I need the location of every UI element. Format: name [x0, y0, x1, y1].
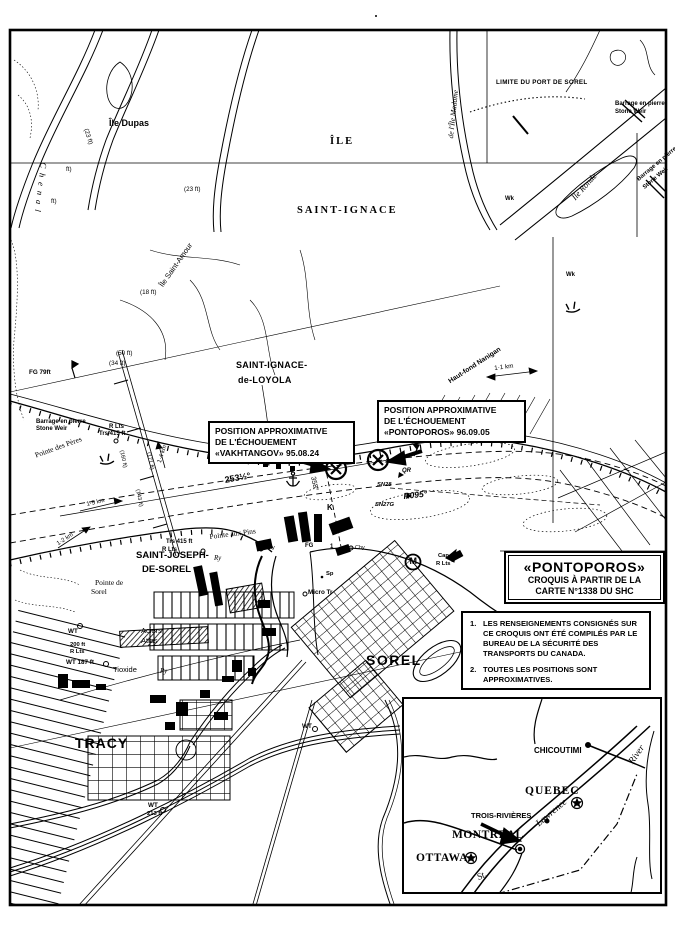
label-pointe-de: Pointe de: [95, 579, 123, 587]
wt-circle-4: [313, 727, 318, 732]
label-depth-34: (34 ft): [109, 361, 125, 367]
light-fg79: [72, 361, 78, 378]
label-barrage1a: Barrage en pierre: [615, 101, 665, 107]
inset-label-montreal: MONTREAL: [452, 830, 524, 842]
title-line2: CROQUIS À PARTIR DE LA: [528, 575, 641, 586]
notes-box: 1. LES RENSEIGNEMENTS CONSIGNÉS SUR CE C…: [461, 611, 651, 690]
label-ile: ÎLE: [330, 137, 354, 148]
label-wk2: Wk: [566, 272, 575, 278]
label-bearing-r095: R095°: [403, 490, 427, 501]
note-2: 2. TOUTES LES POSITIONS SONT APPROXIMATI…: [470, 665, 642, 685]
label-rlts-s2: R Lts: [162, 547, 177, 553]
wreck-icon-1: [565, 301, 580, 313]
label-cap2: R Lts: [436, 562, 451, 568]
label-wt1: WT: [68, 629, 78, 635]
title-box: «PONTOPOROS» CROQUIS À PARTIR DE LA CART…: [504, 551, 665, 604]
pontoporos-line2: DE L'ÉCHOUEMENT: [384, 416, 519, 427]
title-vessel-name: «PONTOPOROS»: [524, 559, 646, 575]
annotation-box-pontoporos: POSITION APPROXIMATIVE DE L'ÉCHOUEMENT «…: [377, 400, 526, 443]
vakhtangov-line1: POSITION APPROXIMATIVE: [215, 426, 348, 437]
label-saint-ignace: SAINT-IGNACE: [297, 206, 398, 217]
label-ile-dupas: Île Dupas: [109, 119, 149, 128]
label-wk1: Wk: [505, 196, 514, 202]
inset-label-trois-rivieres: TROIS-RIVIÈRES: [471, 812, 531, 820]
chicoutimi-dot: [586, 743, 591, 748]
label-barrage1b: Stone Weir: [615, 109, 646, 115]
label-pointe-de-2: Sorel: [91, 588, 107, 596]
label-buoy-qr: QR: [402, 468, 411, 474]
label-wt213a: WT: [148, 803, 158, 809]
inset-city-marks: [466, 743, 591, 864]
label-fg79: FG 79ft: [29, 370, 51, 376]
vakhtangov-line3: «VAKHTANGOV» 95.08.24: [215, 448, 348, 459]
label-rlts-n1: R Lts: [109, 424, 124, 430]
micro-tower: [303, 592, 307, 596]
pontoporos-line3: «PONTOPOROS» 96.09.05: [384, 427, 519, 438]
label-loyola-2: de-LOYOLA: [238, 376, 292, 385]
label-buoy-sn28: SN28: [377, 483, 392, 489]
tower-r-lts-north: [114, 439, 118, 443]
label-depth-23b: (23 ft): [184, 187, 200, 193]
label-rlts-n2: Trs 415 ft: [99, 431, 125, 437]
label-limite-port: LIMITE DU PORT DE SOREL: [496, 80, 588, 86]
title-line3: CARTE N°1338 DU SHC: [535, 586, 633, 597]
label-cap1: Cap: [438, 554, 449, 560]
inset-label-chicoutimi: CHICOUTIMI: [534, 747, 582, 755]
label-sp: Sp: [326, 572, 333, 578]
label-barrage3b: Stone Weir: [36, 426, 67, 432]
label-depth-ftb: ft): [51, 199, 57, 205]
label-sorel: SOREL: [366, 653, 422, 667]
inset-map: CHICOUTIMI QUEBEC TROIS-RIVIÈRES MONTREA…: [402, 697, 662, 894]
label-buoy-sn27g: SN27G: [375, 503, 394, 509]
note-1-number: 1.: [470, 619, 483, 659]
navigation-channel: [10, 450, 666, 552]
label-saint-joseph-2: DE-SOREL: [142, 565, 191, 575]
label-200ft-rlts: R Lts: [70, 650, 85, 656]
label-fg1: FG: [305, 543, 313, 549]
quebec-star-icon: [572, 798, 583, 809]
label-tioxide: Tioxide: [113, 666, 137, 674]
grounding-x-pontoporos: [368, 450, 388, 470]
label-k: K: [327, 504, 333, 512]
inset-label-quebec: QUEBEC: [525, 786, 580, 798]
label-aciers-1: Aciers: [141, 627, 162, 635]
label-ry1: Ry: [214, 555, 221, 562]
label-aciers-2: Atlas: [141, 637, 158, 645]
inset-label-ottawa: OTTAWA: [416, 853, 468, 865]
right-fields: [558, 440, 666, 555]
label-fg-num: 1: [330, 544, 333, 550]
registration-dot: [375, 15, 377, 17]
note-1-text: LES RENSEIGNEMENTS CONSIGNÉS SUR CE CROQ…: [483, 619, 642, 659]
annotation-box-vakhtangov: POSITION APPROXIMATIVE DE L'ÉCHOUEMENT «…: [208, 421, 355, 464]
label-barrage3a: Barrage en pierre: [36, 419, 86, 425]
label-wt-mid: WT: [302, 724, 312, 730]
spire: [321, 576, 324, 579]
label-wt213b: 213 ft: [147, 812, 162, 818]
note-2-text: TOUTES LES POSITIONS SONT APPROXIMATIVES…: [483, 665, 642, 685]
label-depth-18: (18 ft): [140, 290, 156, 296]
arrow-pontoporos: [386, 451, 422, 465]
note-1: 1. LES RENSEIGNEMENTS CONSIGNÉS SUR CE C…: [470, 619, 642, 659]
label-loyola-1: SAINT-IGNACE-: [236, 361, 307, 370]
label-depth-50: (50 ft): [116, 351, 132, 357]
label-micro-tr: Micro Tr: [308, 590, 333, 596]
vakhtangov-line2: DE L'ÉCHOUEMENT: [215, 437, 348, 448]
label-wt187: WT 187 ft: [66, 660, 94, 666]
label-chy1: Chy: [265, 546, 275, 552]
sorel-circle-dot-icon: [516, 845, 525, 854]
label-rlts-s1: Trs 415 ft: [166, 539, 192, 545]
label-ry2: Ry: [160, 668, 167, 675]
label-depth-fta: ft): [66, 167, 72, 173]
anchorage-icon: [287, 472, 300, 486]
label-tracy: TRACY: [75, 736, 128, 750]
pontoporos-line1: POSITION APPROXIMATIVE: [384, 405, 519, 416]
note-2-number: 2.: [470, 665, 483, 685]
title-box-inner: «PONTOPOROS» CROQUIS À PARTIR DE LA CART…: [508, 555, 661, 600]
label-200ft: 200 ft: [70, 643, 85, 649]
label-chy2: Chy: [355, 546, 365, 552]
label-m: M: [410, 557, 418, 566]
wreck-icon-2: [99, 453, 114, 465]
chart-page: Île Dupas ÎLE SAINT-IGNACE LIMITE DU POR…: [0, 0, 675, 930]
